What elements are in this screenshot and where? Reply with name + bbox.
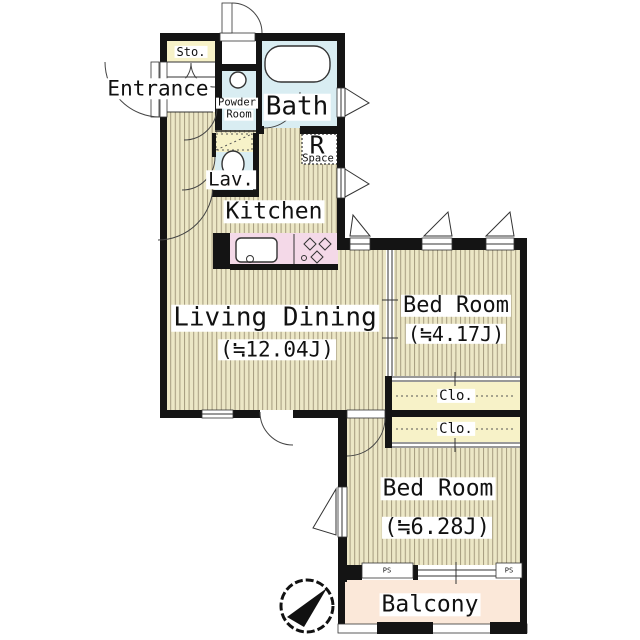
north-arrow-icon <box>281 580 333 632</box>
room-label-r-space-line2: Space <box>300 154 336 165</box>
room-label-lavatory: Lav. <box>206 170 256 189</box>
room-label-closet-upper: Clo. <box>437 389 475 403</box>
room-label-balcony: Balcony <box>380 593 481 616</box>
powder-sink-icon <box>230 72 246 88</box>
room-area-living-dining: (≒12.04J) <box>218 339 336 360</box>
room-area-bedroom-large: (≒6.28J) <box>382 517 492 539</box>
room-label-living-dining: Living Dining <box>171 305 379 332</box>
room-label-storage: Sto. <box>175 46 208 58</box>
room-label-kitchen: Kitchen <box>224 200 325 223</box>
room-label-bath: Bath <box>264 94 331 121</box>
label-pipe-shaft-right: PS <box>505 567 513 574</box>
room-label-powder-line2: Room <box>224 110 253 121</box>
room-label-bedroom-large: Bed Room <box>381 477 496 500</box>
room-label-entrance: Entrance <box>105 78 210 99</box>
room-label-bedroom-small: Bed Room <box>401 295 511 317</box>
label-pipe-shaft-left: PS <box>383 567 391 574</box>
floorplan: Sto. Entrance Powder Room Bath Lav. R Sp… <box>0 0 640 640</box>
room-label-closet-lower: Clo. <box>437 422 475 436</box>
room-label-powder-line1: Powder <box>216 98 258 109</box>
room-area-bedroom-small: (≒4.17J) <box>406 324 506 344</box>
bathtub-icon <box>265 46 330 82</box>
